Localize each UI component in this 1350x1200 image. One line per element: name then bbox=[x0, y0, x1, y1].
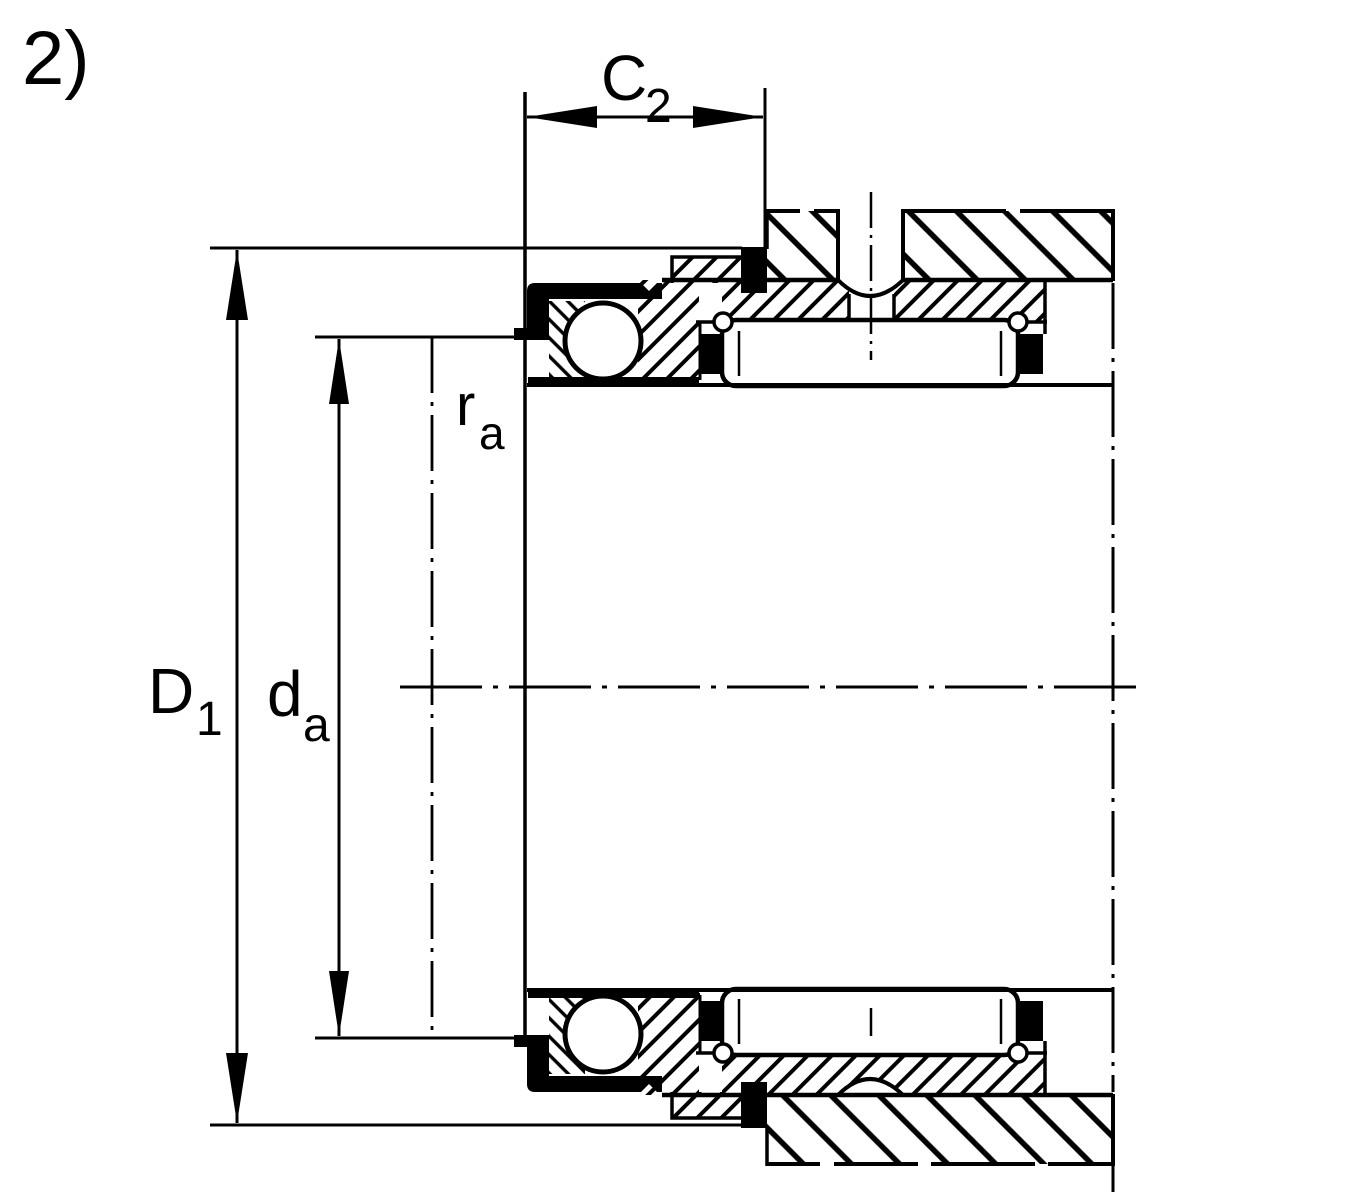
d1-arrow-top bbox=[226, 250, 248, 320]
cage-lip-left-bottom bbox=[714, 1044, 732, 1062]
ball-bottom bbox=[565, 996, 641, 1072]
outer-ring-collar-top bbox=[672, 257, 743, 281]
da-label-sub: a bbox=[303, 699, 330, 752]
da-arrow-bottom bbox=[329, 971, 349, 1036]
da-arrow-top bbox=[329, 339, 349, 404]
cage-block-right-bottom bbox=[1020, 1001, 1043, 1041]
bearing-section-figure: 2) C 2 D 1 d a r a bbox=[0, 0, 1350, 1200]
ra-label-base: r bbox=[456, 373, 475, 438]
housing-flange-bottom-hatch bbox=[767, 1095, 1113, 1164]
housing-flange-top bbox=[767, 206, 1113, 281]
cage-lip-right-top bbox=[1009, 313, 1027, 331]
outer-ring-collar-bottom bbox=[672, 1094, 743, 1118]
cage-block-left-top bbox=[699, 334, 722, 374]
c2-arrow-right bbox=[693, 106, 763, 128]
c2-label-sub: 2 bbox=[645, 80, 672, 133]
cage-lip-right-bottom bbox=[1009, 1044, 1027, 1062]
bearing-cross-section-drawing: 2) C 2 D 1 d a r a bbox=[0, 0, 1350, 1200]
outer-seal-square-bottom bbox=[741, 1082, 767, 1128]
c2-arrow-left bbox=[527, 106, 597, 128]
c2-label-base: C bbox=[601, 42, 647, 114]
da-label-base: d bbox=[267, 658, 303, 730]
cage-lip-left-top bbox=[714, 313, 732, 331]
outer-seal-square-top bbox=[741, 247, 767, 293]
figure-label: 2) bbox=[22, 16, 90, 101]
housing-flange-bottom bbox=[767, 1094, 1113, 1166]
ball-top bbox=[565, 303, 641, 379]
housing-flange-top-hatch bbox=[767, 211, 1113, 280]
d1-arrow-bottom bbox=[226, 1053, 248, 1123]
cage-block-right-top bbox=[1020, 334, 1043, 374]
ra-label-sub: a bbox=[479, 407, 505, 459]
needle-row-bottom bbox=[699, 989, 1043, 1062]
d1-label-sub: 1 bbox=[196, 693, 223, 746]
cage-block-left-bottom bbox=[699, 1001, 722, 1041]
d1-label-base: D bbox=[148, 655, 194, 727]
